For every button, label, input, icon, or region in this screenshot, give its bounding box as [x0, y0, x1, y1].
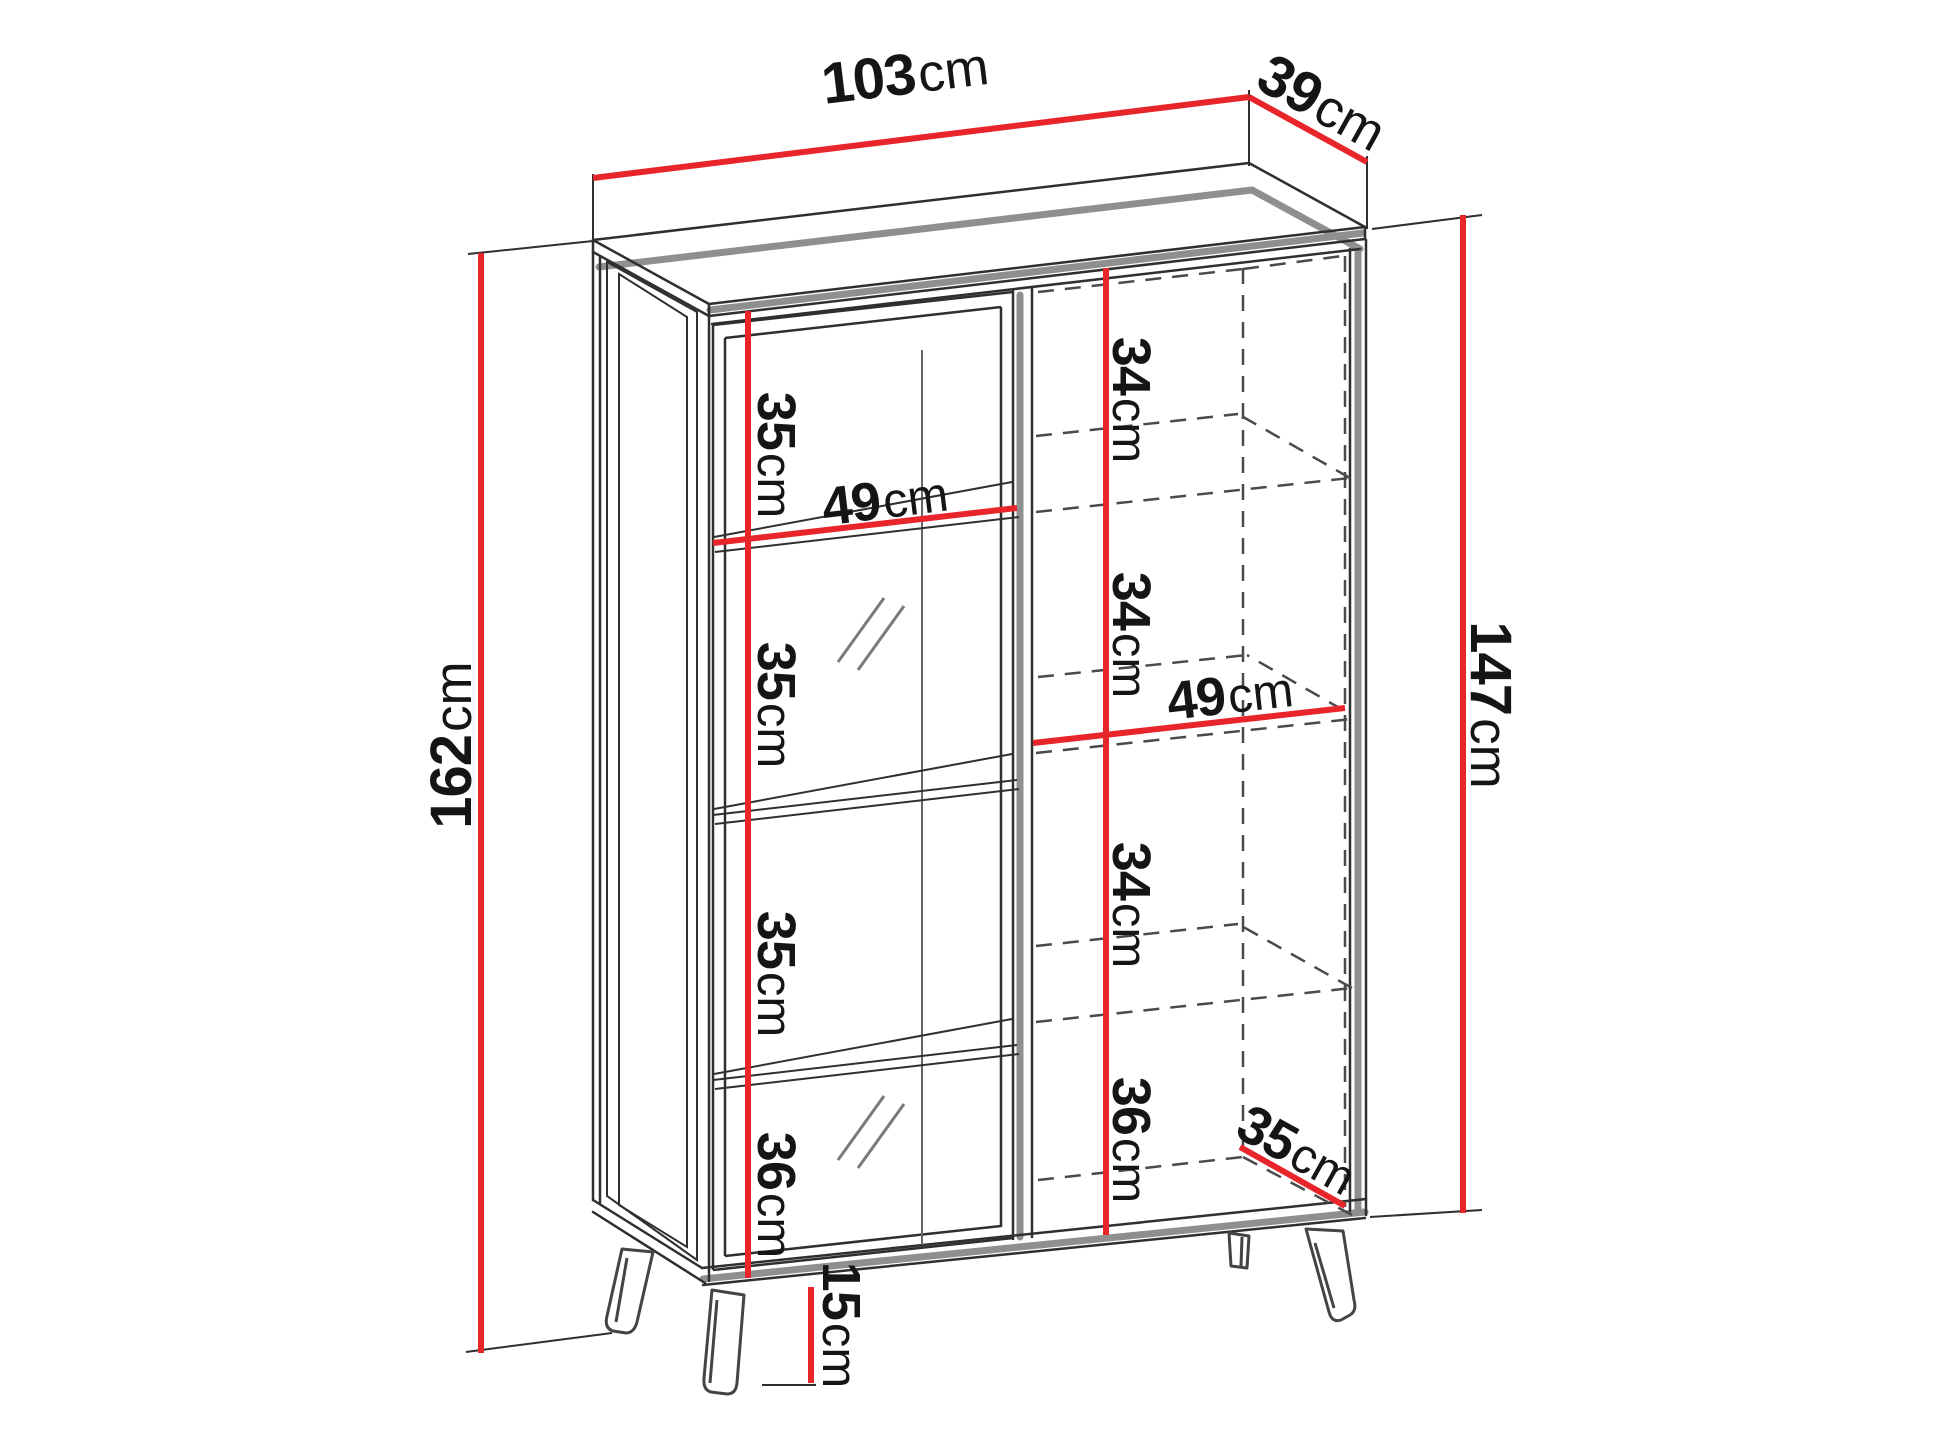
dim-label-leg-height: 15cm [814, 1262, 868, 1388]
dim-label-left-gap-3: 35cm [749, 911, 803, 1037]
dim-line-width-top [593, 97, 1249, 178]
dim-label-shelf-width-right: 49cm [1164, 661, 1296, 729]
dim-label-right-gap-4: 36cm [1104, 1077, 1158, 1203]
cabinet-line-drawing [0, 0, 1940, 1455]
dim-label-right-gap-1: 34cm [1104, 337, 1158, 463]
dim-label-height-total: 162cm [423, 661, 481, 828]
dim-label-right-gap-2: 34cm [1104, 572, 1158, 698]
dim-label-left-gap-2: 35cm [749, 642, 803, 768]
dim-label-left-gap-1: 35cm [749, 392, 803, 518]
furniture-dimension-diagram: 103cm 39cm 162cm 147cm 35cm 35cm 35cm 36… [0, 0, 1940, 1455]
dim-label-right-gap-3: 34cm [1104, 842, 1158, 968]
dim-label-height-body: 147cm [1461, 621, 1519, 788]
dim-label-left-gap-4: 36cm [749, 1132, 803, 1258]
